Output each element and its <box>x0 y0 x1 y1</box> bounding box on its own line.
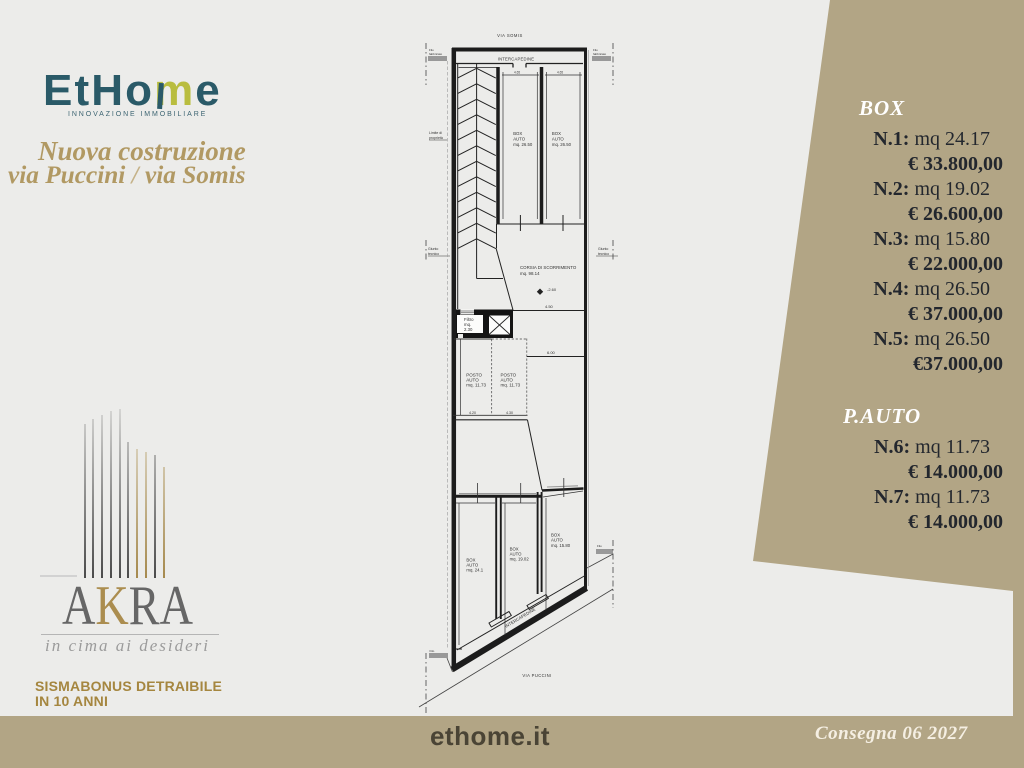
svg-text:2.30: 2.30 <box>464 327 473 332</box>
svg-text:4.65: 4.65 <box>557 71 563 75</box>
svg-text:Filo: Filo <box>597 544 602 548</box>
svg-text:4.30: 4.30 <box>506 411 513 415</box>
svg-text:Filo: Filo <box>430 649 435 653</box>
svg-text:VIA SOMIS: VIA SOMIS <box>497 33 523 38</box>
svg-text:6.00: 6.00 <box>547 350 556 355</box>
svg-text:AUTO: AUTO <box>513 137 526 142</box>
svg-text:-2.60: -2.60 <box>547 287 557 292</box>
svg-text:BOX: BOX <box>513 131 522 136</box>
svg-text:mq. 11.73: mq. 11.73 <box>466 383 486 388</box>
svg-text:Giunto: Giunto <box>598 247 608 251</box>
svg-text:mq. 26.50: mq. 26.50 <box>552 142 572 147</box>
svg-text:tecnico: tecnico <box>598 252 609 256</box>
svg-text:mq. 24.1: mq. 24.1 <box>466 568 483 573</box>
svg-text:INTERCAPEDINE: INTERCAPEDINE <box>498 56 535 61</box>
svg-text:mq. 98.14: mq. 98.14 <box>520 271 540 276</box>
svg-text:VIA PUCCINI: VIA PUCCINI <box>522 673 551 678</box>
svg-text:mq. 19.02: mq. 19.02 <box>510 557 530 562</box>
svg-text:AUTO: AUTO <box>552 137 565 142</box>
svg-text:4.20: 4.20 <box>469 411 476 415</box>
svg-text:fabbricato: fabbricato <box>593 52 607 56</box>
svg-text:4.65: 4.65 <box>514 71 520 75</box>
svg-text:Limite di: Limite di <box>429 131 442 135</box>
svg-text:4.50: 4.50 <box>545 304 554 309</box>
svg-text:BOX: BOX <box>552 131 561 136</box>
svg-text:CORSIA DI SCORRIMENTO: CORSIA DI SCORRIMENTO <box>520 265 577 270</box>
svg-text:mq. 15.80: mq. 15.80 <box>551 543 571 548</box>
svg-text:AKRA: AKRA <box>62 580 193 632</box>
svg-text:proprietà: proprietà <box>429 136 443 140</box>
svg-text:mq. 26.50: mq. 26.50 <box>513 142 533 147</box>
svg-text:mq. 11.73: mq. 11.73 <box>501 383 521 388</box>
svg-text:fabbricato: fabbricato <box>429 52 443 56</box>
svg-text:Giunto: Giunto <box>428 247 438 251</box>
svg-text:AUTO: AUTO <box>551 538 564 543</box>
svg-text:tecnico: tecnico <box>428 252 439 256</box>
